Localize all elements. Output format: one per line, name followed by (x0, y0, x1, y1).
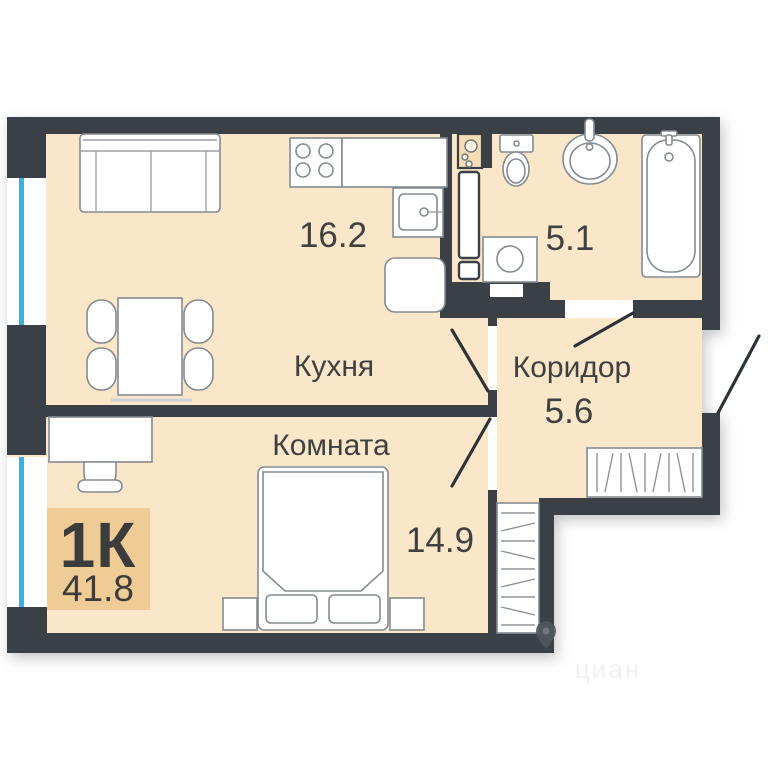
wardrobe-bedroom (497, 503, 539, 633)
fridge (385, 258, 445, 312)
bedroom-name-label: Комната (272, 429, 390, 462)
dining-table-set (87, 298, 213, 400)
nightstand (223, 598, 257, 630)
bedroom-door-opening (488, 417, 497, 490)
chair (87, 348, 116, 390)
kitchen-door-opening (488, 326, 497, 390)
kitchen-counter (342, 138, 447, 187)
bed (258, 467, 388, 630)
wardrobe-corridor (587, 448, 702, 497)
chair (184, 348, 213, 390)
entrance-door (718, 336, 759, 413)
bathroom-area-label: 5.1 (546, 219, 595, 258)
chair (87, 300, 116, 343)
bathroom-door-opening (565, 300, 633, 318)
stove (290, 138, 342, 187)
kitchen-sink (393, 188, 443, 237)
washing-machine (483, 237, 537, 282)
watermark-text: циан (575, 654, 641, 684)
chair (184, 300, 213, 343)
bedroom-area-label: 14.9 (406, 521, 474, 560)
pillow (266, 595, 317, 623)
sofa (80, 134, 220, 212)
badge-area-label: 41.8 (62, 568, 134, 609)
floor-plan: 16.2 Кухня 5.1 Коридор 5.6 Комната 14.9 … (0, 0, 768, 768)
kitchen-name-label: Кухня (294, 350, 374, 383)
kitchen-area-label: 16.2 (299, 216, 367, 255)
desk (49, 417, 152, 462)
kitchen-window-reveal (7, 178, 46, 325)
bedroom-window (19, 457, 24, 607)
pillow (329, 595, 380, 623)
desk-chair-back (78, 480, 122, 492)
utility-shaft (458, 134, 482, 279)
kitchen-window (19, 178, 24, 325)
map-pin-hole (543, 628, 550, 635)
apartment-type-badge: 1К 41.8 (47, 508, 150, 610)
bedroom-window-reveal (7, 457, 47, 607)
corridor-area-label: 5.6 (545, 392, 594, 431)
dining-table (118, 298, 182, 395)
wall-niche (490, 284, 523, 297)
bathtub (642, 131, 700, 277)
duvet (263, 472, 383, 591)
nightstand (390, 598, 424, 630)
corridor-name-label: Коридор (513, 351, 631, 384)
